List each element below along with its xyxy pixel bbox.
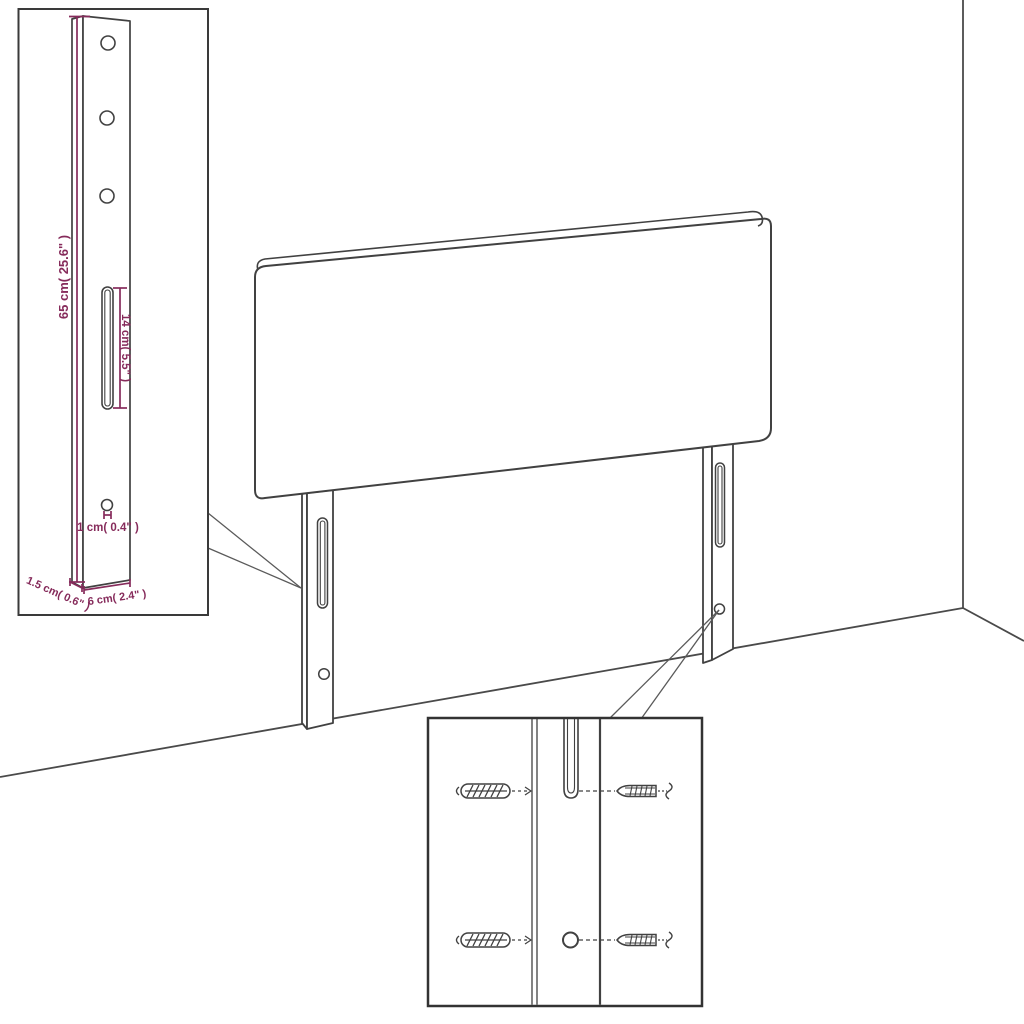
dim-label-height: 65 cm( 25.6" ) xyxy=(56,235,71,319)
callout-line-hole-left xyxy=(609,610,719,719)
callout-line-leg-lower xyxy=(208,548,301,588)
headboard-left-leg xyxy=(302,490,333,729)
callout-line-leg-upper xyxy=(208,513,301,588)
mounting-detail-inset-border xyxy=(428,718,702,1006)
floor-line-right xyxy=(963,608,1024,641)
headboard-panel xyxy=(255,212,771,499)
detail-leg-front-face xyxy=(83,16,130,588)
dim-label-hole: 1 cm( 0.4" ) xyxy=(77,522,139,534)
leg-detail-inset: 65 cm( 25.6" ) 14 cm( 5.5" ) 1 cm( 0.4" … xyxy=(19,9,209,615)
mounting-detail-inset xyxy=(428,718,702,1006)
diagram-page: 65 cm( 25.6" ) 14 cm( 5.5" ) 1 cm( 0.4" … xyxy=(0,0,1024,1024)
dim-label-slot: 14 cm( 5.5" ) xyxy=(119,314,131,382)
headboard-front-face xyxy=(255,219,771,499)
headboard-dimension-diagram: 65 cm( 25.6" ) 14 cm( 5.5" ) 1 cm( 0.4" … xyxy=(0,0,1024,1024)
callout-lines xyxy=(208,513,719,719)
callout-line-hole-right xyxy=(641,610,719,719)
headboard-right-leg xyxy=(703,443,733,663)
